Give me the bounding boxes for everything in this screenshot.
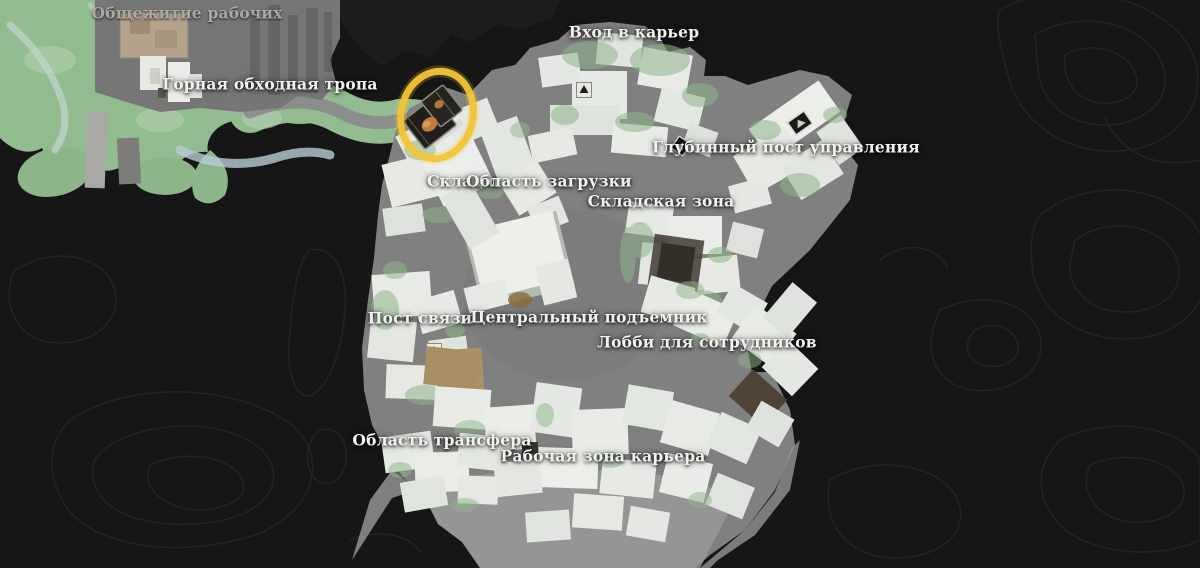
gate-marker-north[interactable]: [577, 83, 592, 98]
map-canvas: [0, 0, 1200, 568]
game-map-screen: Общежитие рабочих Горная обходная тропа …: [0, 0, 1200, 568]
